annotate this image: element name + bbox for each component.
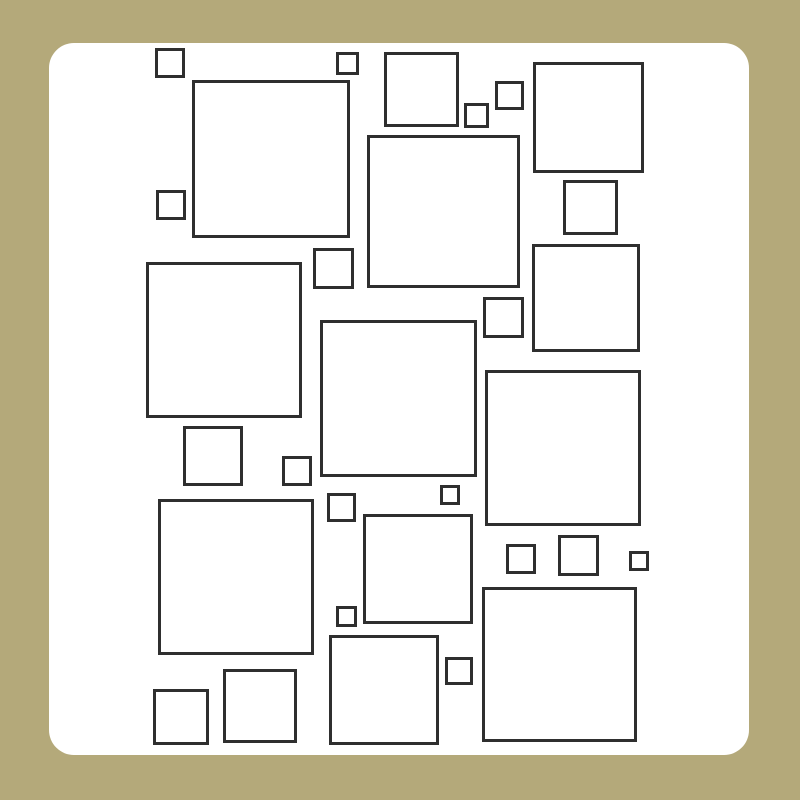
square xyxy=(445,657,473,685)
square xyxy=(533,62,644,173)
square xyxy=(158,499,314,655)
square xyxy=(146,262,302,418)
square xyxy=(155,48,185,78)
square xyxy=(367,135,520,288)
square xyxy=(464,103,489,128)
square xyxy=(506,544,536,574)
square xyxy=(629,551,649,571)
square xyxy=(153,689,209,745)
square xyxy=(384,52,459,127)
square xyxy=(485,370,641,526)
square xyxy=(282,456,312,486)
square xyxy=(563,180,618,235)
square xyxy=(495,81,524,110)
square xyxy=(156,190,186,220)
background xyxy=(0,0,800,800)
square xyxy=(329,635,439,745)
square xyxy=(336,52,359,75)
square xyxy=(327,493,356,522)
square xyxy=(482,587,637,742)
square xyxy=(440,485,460,505)
square xyxy=(320,320,477,477)
square xyxy=(223,669,297,743)
square xyxy=(363,514,473,624)
square xyxy=(336,606,357,627)
square xyxy=(192,80,350,238)
square xyxy=(483,297,524,338)
square xyxy=(558,535,599,576)
square xyxy=(532,244,640,352)
square xyxy=(313,248,354,289)
square xyxy=(183,426,243,486)
